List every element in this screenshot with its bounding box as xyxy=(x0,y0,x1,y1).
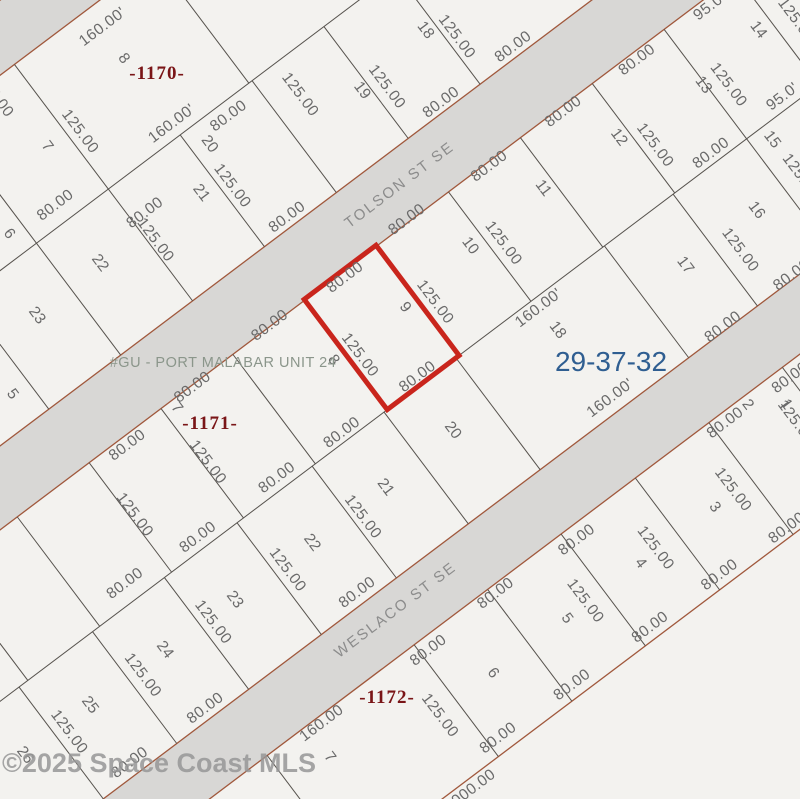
block-label-1170: -1170- xyxy=(129,63,185,85)
block-label-1172: -1172- xyxy=(359,687,415,709)
section-township-range-label: 29-37-32 xyxy=(555,346,667,378)
mls-watermark: ©2025 Space Coast MLS xyxy=(2,748,316,779)
block-label-1171: -1171- xyxy=(182,413,238,435)
plat-map: TOLSON ST SEWESLACO ST SE 160.00'160.00'… xyxy=(0,0,800,799)
plat-map-canvas: TOLSON ST SEWESLACO ST SE 160.00'160.00'… xyxy=(0,0,800,799)
plat-unit-label: #GU - PORT MALABAR UNIT 24 xyxy=(110,355,337,371)
